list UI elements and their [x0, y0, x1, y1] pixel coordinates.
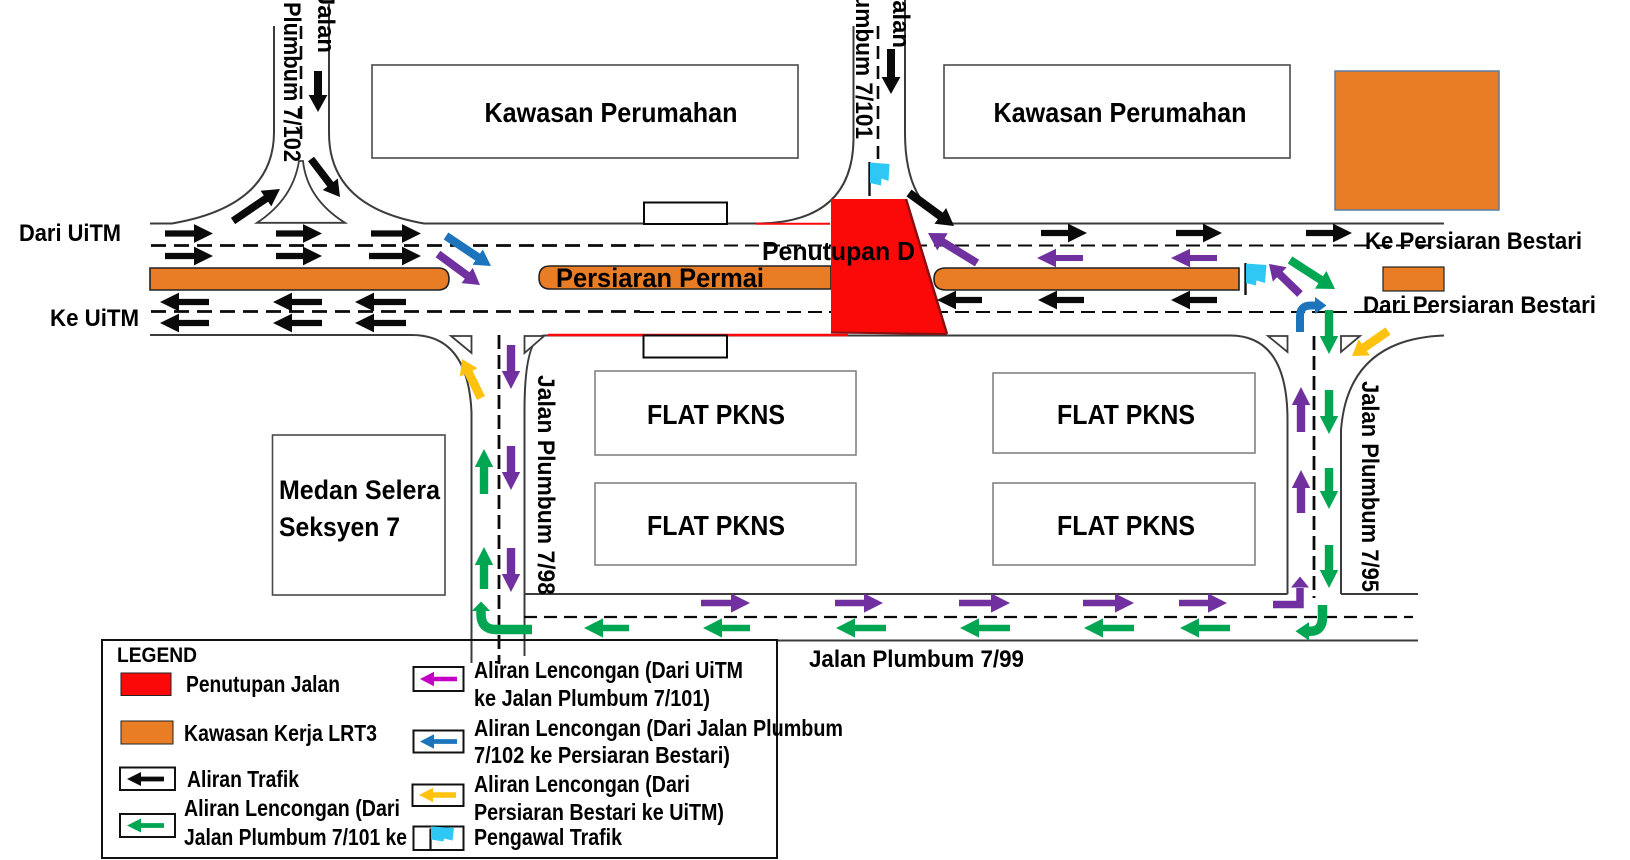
svg-text:Jalan: Jalan: [312, 0, 339, 53]
svg-text:Kawasan Kerja LRT3: Kawasan Kerja LRT3: [184, 720, 377, 746]
svg-text:Plumbum 7/101: Plumbum 7/101: [850, 0, 877, 139]
svg-text:FLAT PKNS: FLAT PKNS: [647, 399, 785, 430]
svg-text:FLAT PKNS: FLAT PKNS: [1057, 510, 1195, 541]
svg-text:Penutupan D: Penutupan D: [762, 236, 915, 266]
svg-text:Jalan Plumbum 7/95: Jalan Plumbum 7/95: [1356, 381, 1383, 592]
svg-text:Aliran Lencongan (Dari Jalan P: Aliran Lencongan (Dari Jalan Plumbum: [474, 715, 843, 741]
svg-text:Aliran Lencongan (Dari: Aliran Lencongan (Dari: [184, 795, 400, 821]
svg-text:Ke Persiaran Bestari: Ke Persiaran Bestari: [1365, 228, 1582, 255]
svg-text:Jalan Plumbum 7/98: Jalan Plumbum 7/98: [532, 375, 559, 595]
svg-text:Pengawal Trafik: Pengawal Trafik: [474, 824, 622, 850]
svg-text:Penutupan Jalan: Penutupan Jalan: [186, 671, 340, 697]
svg-text:Kawasan Perumahan: Kawasan Perumahan: [994, 97, 1247, 128]
svg-text:Dari Persiaran Bestari: Dari Persiaran Bestari: [1363, 292, 1596, 319]
svg-text:Aliran Lencongan (Dari UiTM: Aliran Lencongan (Dari UiTM: [474, 657, 743, 683]
svg-text:ke Jalan Plumbum 7/101): ke Jalan Plumbum 7/101): [474, 685, 710, 711]
svg-text:Persiaran Bestari ke UiTM): Persiaran Bestari ke UiTM): [474, 799, 724, 825]
svg-text:Plumbum 7/102: Plumbum 7/102: [278, 2, 305, 162]
svg-text:Kawasan Perumahan: Kawasan Perumahan: [485, 97, 738, 128]
svg-text:Seksyen 7: Seksyen 7: [279, 512, 400, 542]
svg-text:Dari UiTM: Dari UiTM: [19, 220, 121, 247]
svg-text:Jalan: Jalan: [887, 0, 914, 48]
svg-text:Jalan Plumbum 7/99: Jalan Plumbum 7/99: [809, 646, 1024, 673]
svg-text:Ke UiTM: Ke UiTM: [50, 305, 139, 332]
svg-text:Medan Selera: Medan Selera: [279, 475, 441, 505]
svg-text:FLAT PKNS: FLAT PKNS: [1057, 399, 1195, 430]
svg-text:FLAT PKNS: FLAT PKNS: [647, 510, 785, 541]
svg-text:Aliran Trafik: Aliran Trafik: [187, 766, 299, 792]
svg-text:7/102 ke Persiaran Bestari): 7/102 ke Persiaran Bestari): [474, 742, 730, 768]
svg-text:LEGEND: LEGEND: [117, 644, 197, 667]
svg-text:Jalan Plumbum 7/101 ke: Jalan Plumbum 7/101 ke: [184, 824, 407, 850]
svg-text:Aliran Lencongan (Dari: Aliran Lencongan (Dari: [474, 771, 690, 797]
svg-text:Persiaran Permai: Persiaran Permai: [556, 263, 764, 293]
